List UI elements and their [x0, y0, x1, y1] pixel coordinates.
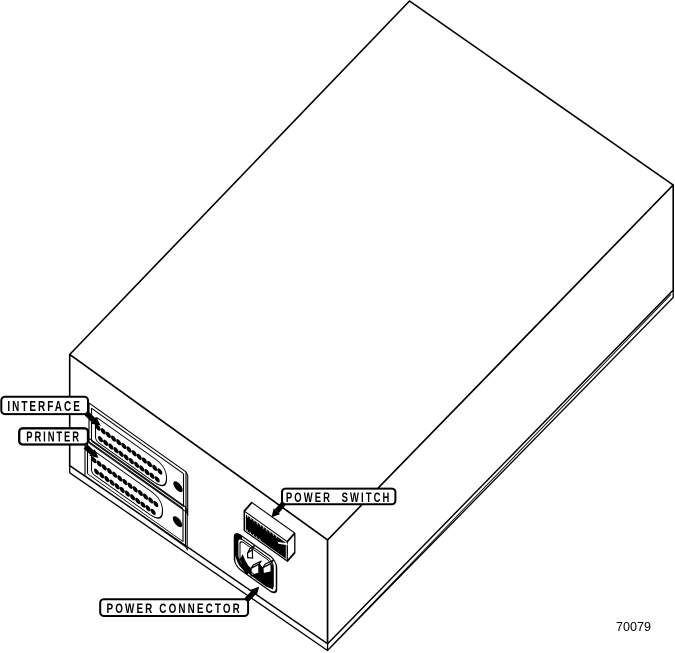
svg-text:POWER SWITCH: POWER SWITCH	[286, 490, 392, 505]
svg-text:70079: 70079	[616, 619, 651, 634]
svg-text:PRINTER: PRINTER	[26, 430, 81, 446]
svg-text:INTERFACE: INTERFACE	[7, 399, 82, 415]
svg-text:POWER CONNECTOR: POWER CONNECTOR	[107, 601, 242, 616]
